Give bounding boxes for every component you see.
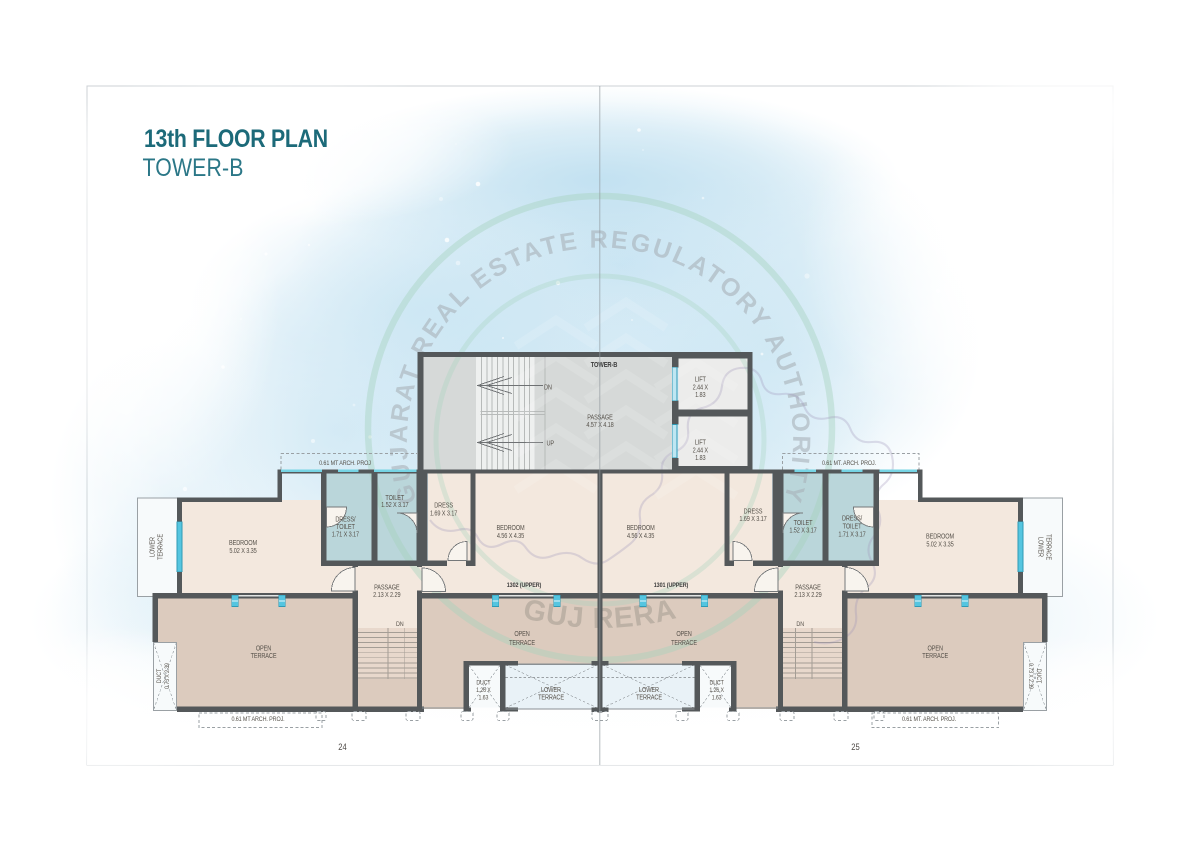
svg-text:1301 (UPPER): 1301 (UPPER): [654, 581, 689, 589]
svg-text:DN: DN: [396, 620, 404, 628]
svg-text:BEDROOM: BEDROOM: [229, 539, 257, 547]
svg-text:1.63: 1.63: [712, 695, 723, 702]
svg-text:1302 (UPPER): 1302 (UPPER): [507, 581, 542, 589]
svg-text:0.61 MT. ARCH. PROJ.: 0.61 MT. ARCH. PROJ.: [822, 459, 876, 467]
svg-text:25: 25: [851, 741, 860, 752]
svg-text:OPEN: OPEN: [256, 645, 272, 653]
svg-text:1.69 X 3.17: 1.69 X 3.17: [430, 510, 458, 518]
svg-text:TERRACE: TERRACE: [157, 534, 165, 560]
svg-text:TERRACE: TERRACE: [1044, 534, 1052, 560]
svg-text:1.63: 1.63: [479, 695, 490, 702]
svg-text:TERRACE: TERRACE: [636, 694, 662, 702]
svg-text:TOILET: TOILET: [843, 523, 862, 531]
svg-text:1.83: 1.83: [695, 391, 706, 399]
svg-text:LIFT: LIFT: [695, 439, 706, 447]
svg-text:1.71 X 3.17: 1.71 X 3.17: [838, 531, 866, 539]
svg-text:1.52 X 3.17: 1.52 X 3.17: [789, 527, 817, 535]
svg-text:DUCT: DUCT: [157, 668, 164, 683]
svg-text:TERRACE: TERRACE: [509, 639, 535, 647]
svg-text:LIFT: LIFT: [695, 376, 706, 384]
svg-text:0.61 MT ARCH. PROJ.: 0.61 MT ARCH. PROJ.: [231, 715, 284, 723]
svg-text:UP: UP: [547, 440, 555, 448]
svg-text:13th FLOOR PLAN: 13th FLOOR PLAN: [144, 124, 328, 152]
svg-text:2.13 X 2.29: 2.13 X 2.29: [794, 591, 822, 599]
svg-text:1.69 X 3.17: 1.69 X 3.17: [739, 515, 767, 523]
svg-text:5.02 X 3.35: 5.02 X 3.35: [229, 547, 257, 555]
svg-text:0.61 MT. ARCH. PROJ.: 0.61 MT. ARCH. PROJ.: [902, 715, 956, 723]
svg-text:4.56 X 4.35: 4.56 X 4.35: [627, 532, 655, 540]
svg-text:DRESS/: DRESS/: [842, 515, 862, 523]
svg-text:LOWER: LOWER: [149, 537, 157, 557]
svg-text:DUCT: DUCT: [710, 680, 725, 687]
svg-text:DUCT: DUCT: [1035, 669, 1042, 684]
svg-text:BEDROOM: BEDROOM: [926, 533, 954, 541]
svg-text:BEDROOM: BEDROOM: [627, 524, 655, 532]
svg-text:OPEN: OPEN: [928, 645, 944, 653]
svg-text:DN: DN: [796, 620, 804, 628]
svg-text:1.52 X 3.17: 1.52 X 3.17: [381, 502, 409, 510]
svg-text:0.61 MT ARCH. PROJ: 0.61 MT ARCH. PROJ: [319, 459, 371, 467]
svg-text:0.73 X 2.39: 0.73 X 2.39: [1027, 663, 1034, 689]
svg-text:DUCT: DUCT: [476, 680, 491, 687]
svg-text:1.71 X 3.17: 1.71 X 3.17: [332, 531, 360, 539]
svg-text:5.02 X 3.35: 5.02 X 3.35: [926, 541, 954, 549]
svg-text:0.73 X 2.39: 0.73 X 2.39: [165, 662, 172, 688]
svg-text:DN: DN: [544, 384, 552, 392]
svg-text:1.26 X: 1.26 X: [709, 688, 724, 695]
svg-text:DRESS/: DRESS/: [335, 516, 355, 524]
svg-text:2.44 X: 2.44 X: [693, 384, 709, 392]
svg-text:BEDROOM: BEDROOM: [496, 524, 524, 532]
svg-text:2.13 X 2.29: 2.13 X 2.29: [373, 591, 401, 599]
svg-text:4.56 X 4.35: 4.56 X 4.35: [497, 532, 525, 540]
svg-text:TERRACE: TERRACE: [671, 639, 697, 647]
svg-text:2.44 X: 2.44 X: [693, 447, 709, 455]
svg-text:TERRACE: TERRACE: [922, 653, 948, 661]
svg-text:TOWER-B: TOWER-B: [591, 361, 618, 369]
svg-text:LOWER: LOWER: [1036, 537, 1044, 557]
svg-text:TERRACE: TERRACE: [538, 694, 564, 702]
svg-text:DRESS: DRESS: [434, 502, 453, 510]
svg-text:OPEN: OPEN: [676, 630, 692, 638]
svg-text:OPEN: OPEN: [514, 630, 530, 638]
svg-text:TOWER-B: TOWER-B: [143, 153, 244, 181]
svg-text:TERRACE: TERRACE: [251, 653, 277, 661]
svg-text:1.83: 1.83: [695, 454, 706, 462]
svg-text:1.26 X: 1.26 X: [476, 688, 491, 695]
svg-text:24: 24: [338, 741, 347, 752]
